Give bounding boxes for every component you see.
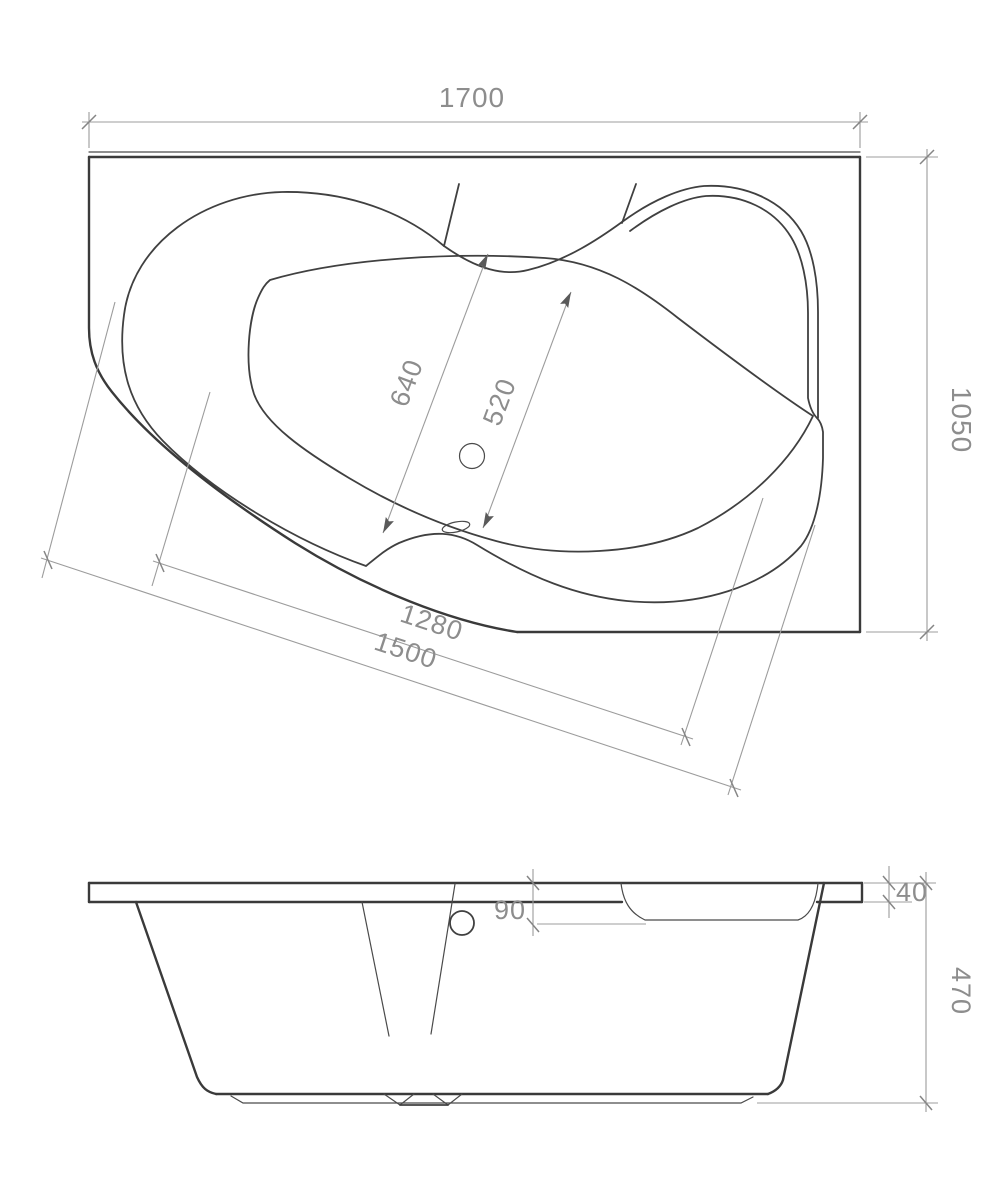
- dim-470-label: 470: [946, 967, 976, 1015]
- dim-1700-label: 1700: [439, 82, 505, 113]
- dim-90-label: 90: [494, 895, 526, 925]
- dim-1500-ext-left: [42, 302, 115, 578]
- dim-1050: 1050: [866, 149, 977, 641]
- dim-640-label: 640: [384, 355, 429, 411]
- rim-cusp-spike-left: [444, 184, 459, 246]
- dim-470: 470: [757, 872, 976, 1112]
- dim-640-arrow-lower: [380, 517, 394, 535]
- bathtub-technical-drawing: 1700 1050 640 520: [0, 0, 1006, 1200]
- dim-520: 520: [477, 290, 574, 530]
- rim-scallop-curve: [444, 222, 622, 272]
- interior-slope-left: [362, 902, 389, 1036]
- dim-1280: 1280: [152, 392, 763, 746]
- dim-1500: 1500: [41, 302, 815, 797]
- shell-left-side: [136, 902, 216, 1094]
- shell-right-side: [768, 883, 824, 1094]
- headrest-inner-curve: [630, 196, 817, 418]
- dim-1280-ext-left: [152, 392, 210, 586]
- headrest-recess-profile: [621, 883, 818, 920]
- headrest-outer-curve: [622, 186, 818, 418]
- skirt-line: [231, 1096, 753, 1103]
- dim-520-arrow-lower: [480, 512, 494, 530]
- drain-hole: [460, 444, 485, 469]
- plan-outer-outline: [89, 152, 860, 632]
- plan-rim-inner-edge: [122, 184, 823, 602]
- dim-1280-ext-right: [681, 498, 763, 745]
- overflow-hole-elevation: [450, 911, 474, 935]
- dim-520-label: 520: [477, 374, 522, 430]
- dim-1700: 1700: [82, 82, 868, 148]
- plan-view: 1700 1050 640 520: [41, 82, 977, 797]
- dim-520-arrow-upper: [560, 290, 574, 308]
- dim-1050-label: 1050: [946, 387, 977, 453]
- elevation-outline: [89, 883, 862, 1105]
- dim-40: 40: [864, 866, 936, 918]
- drawing-sheet: 1700 1050 640 520: [0, 0, 1006, 1200]
- basin-outline: [248, 256, 813, 552]
- dim-40-label: 40: [896, 877, 928, 907]
- dim-1500-tick-right: [730, 779, 738, 797]
- interior-slope-right: [431, 884, 455, 1034]
- elevation-view: 90 40 470: [89, 866, 976, 1112]
- dim-640: 640: [380, 252, 491, 535]
- elevation-interior: [362, 883, 818, 1036]
- rim-deck-curve: [122, 192, 823, 602]
- dim-640-arrow-upper: [477, 252, 491, 270]
